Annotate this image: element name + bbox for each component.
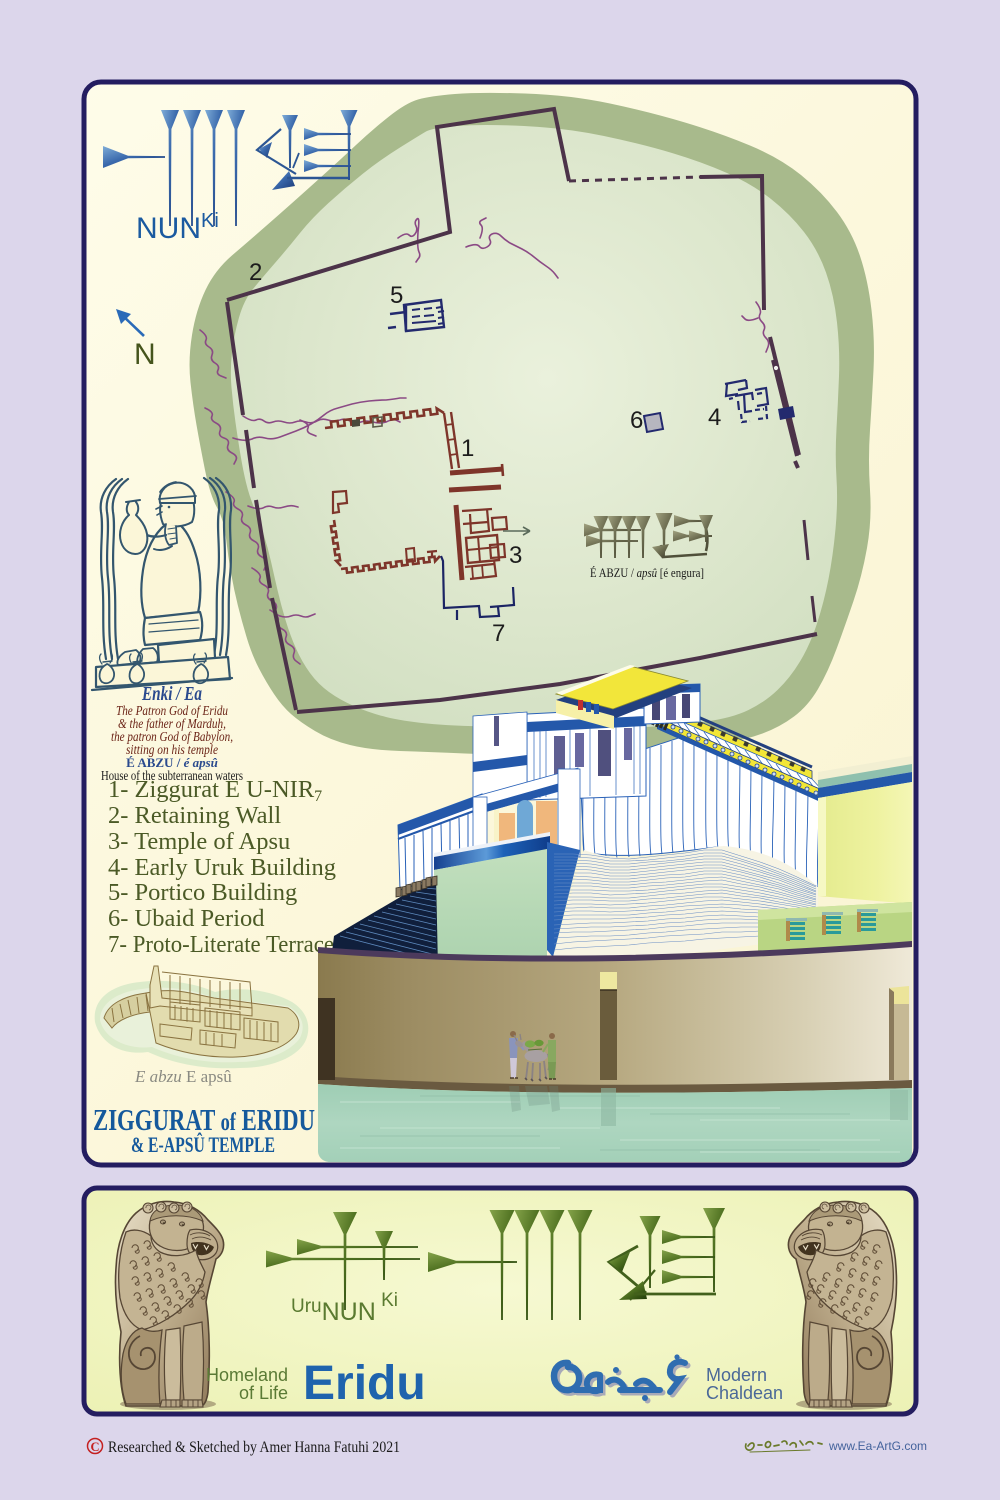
- svg-text:3- Temple of Apsu: 3- Temple of Apsu: [108, 828, 290, 855]
- svg-text:7: 7: [492, 620, 505, 647]
- svg-text:2: 2: [249, 259, 262, 286]
- svg-text:N: N: [134, 338, 156, 371]
- svg-text:6- Ubaid Period: 6- Ubaid Period: [108, 905, 265, 932]
- svg-text:Researched & Sketched by Amer: Researched & Sketched by Amer Hanna Fatu…: [108, 1439, 400, 1456]
- svg-text:É ABZU / apsû [é engura]: É ABZU / apsû [é engura]: [590, 565, 704, 580]
- svg-text:Enki / Ea: Enki / Ea: [141, 683, 202, 705]
- svg-text:2- Retaining Wall: 2- Retaining Wall: [108, 802, 281, 829]
- svg-text:4: 4: [708, 404, 721, 431]
- svg-text:Homeland: Homeland: [206, 1365, 288, 1385]
- svg-text:of Life: of Life: [239, 1383, 288, 1403]
- svg-text:4- Early Uruk Building: 4- Early Uruk Building: [108, 854, 336, 881]
- svg-text:Modern: Modern: [706, 1365, 767, 1385]
- svg-text:C: C: [90, 1440, 99, 1454]
- svg-text:3: 3: [509, 542, 522, 569]
- svg-text:5: 5: [390, 282, 403, 309]
- svg-text:Eridu: Eridu: [303, 1357, 426, 1410]
- svg-text:7- Proto-Literate Terrace: 7- Proto-Literate Terrace: [108, 931, 334, 958]
- svg-text:www.Ea-ArtG.com: www.Ea-ArtG.com: [828, 1439, 927, 1453]
- svg-text:6: 6: [630, 407, 643, 434]
- svg-text:1: 1: [461, 435, 474, 462]
- svg-text:Chaldean: Chaldean: [706, 1383, 783, 1403]
- svg-text:E abzu E apsû: E abzu E apsû: [134, 1067, 232, 1086]
- svg-text:& E-APSÛ TEMPLE: & E-APSÛ TEMPLE: [131, 1132, 275, 1157]
- svg-text:5- Portico Building: 5- Portico Building: [108, 879, 297, 906]
- svg-text:É ABZU / é apsû: É ABZU / é apsû: [126, 755, 218, 770]
- svg-text:1- Ziggurat E U-NIR7: 1- Ziggurat E U-NIR7: [108, 776, 322, 805]
